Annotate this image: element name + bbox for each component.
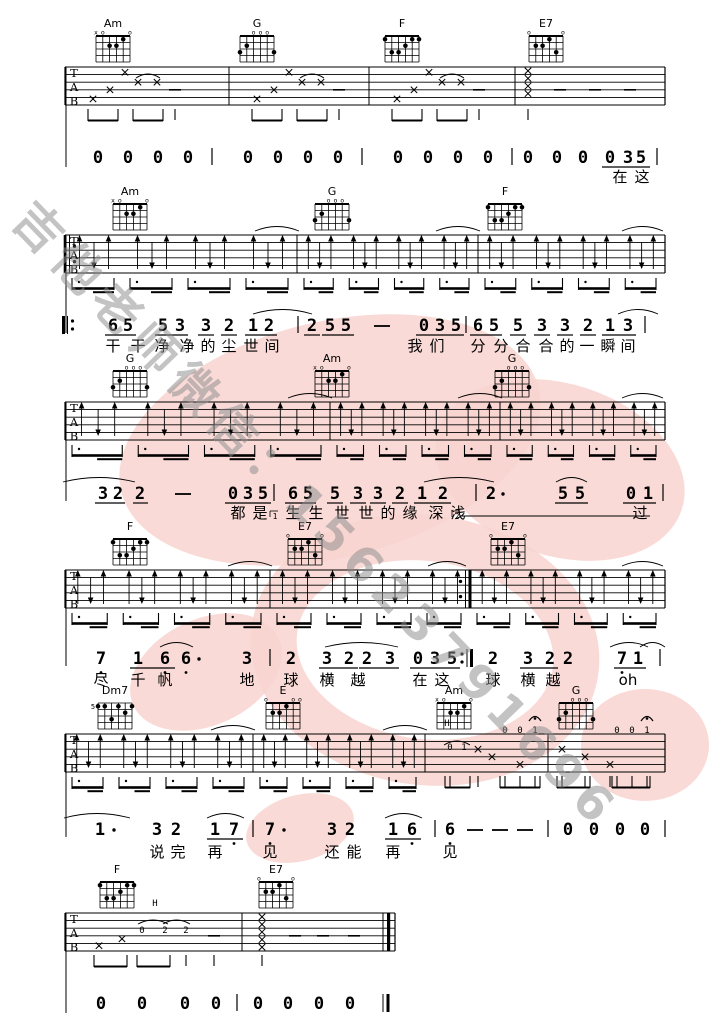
- chord-diagram-E7: E7oo: [489, 520, 527, 565]
- strum-up-arrowhead: [549, 402, 555, 409]
- jianpu-note: 3: [201, 316, 211, 336]
- lyric-syllable: 都: [230, 504, 245, 522]
- beam-rhythm-dot: [180, 616, 182, 618]
- chord-diagram-E7: E7oo: [286, 520, 324, 565]
- beam-rhythm-dot: [78, 281, 80, 283]
- jianpu-note: 2: [362, 649, 372, 669]
- chord-diagram-G: Gooo: [493, 352, 532, 397]
- strum-up-arrowhead: [380, 570, 386, 577]
- jianpu-note: 0: [93, 148, 103, 168]
- chord-finger-dot: [564, 710, 569, 715]
- jianpu-note: 0: [605, 148, 615, 168]
- jianpu-note: 6: [288, 484, 298, 504]
- jianpu-note: 6: [445, 820, 455, 840]
- chord-finger-dot: [527, 385, 532, 390]
- jianpu-note: 0: [578, 148, 588, 168]
- jianpu-low-octave-dot: [411, 842, 414, 845]
- chord-finger-dot: [111, 540, 116, 545]
- chord-finger-dot: [124, 211, 129, 216]
- chord-name-label: E: [280, 684, 287, 697]
- lyric-syllable: 净: [179, 337, 194, 355]
- beam-line-16th: [230, 458, 255, 460]
- chord-finger-dot: [271, 710, 276, 715]
- strum-up-arrowhead: [553, 570, 559, 577]
- beam-line-16th: [294, 626, 311, 628]
- beam-line: [213, 786, 244, 789]
- strum-up-arrowhead: [101, 570, 107, 577]
- chord-diagram-Am: Amxoo: [435, 684, 473, 729]
- lyric-syllable: 世: [334, 504, 349, 522]
- beam-rhythm-dot: [470, 448, 472, 450]
- jianpu-note: 2: [224, 316, 234, 336]
- jianpu-note: 7: [617, 649, 627, 669]
- chord-finger-dot: [306, 540, 311, 545]
- chord-finger-dot: [293, 546, 298, 551]
- jianpu-note: 0: [413, 649, 423, 669]
- chord-finger-dot: [502, 546, 507, 551]
- jianpu-slur-arc: [424, 478, 494, 483]
- beam-rhythm-dot: [78, 780, 80, 782]
- chord-finger-dot: [284, 704, 289, 709]
- jianpu-note: 2: [264, 316, 274, 336]
- beam-rhythm-dot: [428, 448, 430, 450]
- strum-up-arrowhead: [631, 402, 637, 409]
- chord-finger-dot: [493, 218, 498, 223]
- jianpu-augmentation-dot: [501, 492, 504, 495]
- strum-up-arrowhead: [178, 570, 184, 577]
- beam-rhythm-dot: [395, 780, 397, 782]
- lyric-syllable: 过: [632, 504, 647, 522]
- chord-finger-dot: [118, 553, 123, 558]
- chord-finger-dot: [396, 50, 401, 55]
- beam-rhythm-dot: [385, 448, 387, 450]
- chord-diagram-F: F: [486, 185, 525, 230]
- beam-line: [526, 622, 559, 625]
- chord-finger-dot: [313, 218, 318, 223]
- chord-finger-dot: [333, 378, 338, 383]
- jianpu-note: 3: [373, 484, 383, 504]
- chord-diagram-G: Gooo: [238, 17, 277, 62]
- pick-beam-line: [437, 120, 467, 122]
- chord-finger-dot: [284, 896, 289, 901]
- repeat-dot: [459, 595, 462, 598]
- jianpu-repeat-dot: [71, 319, 74, 322]
- pick-beam-line: [392, 120, 422, 122]
- jianpu-note: 6: [473, 316, 483, 336]
- pick-beam-line: [612, 787, 650, 789]
- jianpu-note: 1: [605, 316, 615, 336]
- beam-rhythm-dot: [584, 281, 586, 283]
- beam-rhythm-dot: [400, 281, 402, 283]
- lyric-syllable: 瞬: [600, 337, 615, 355]
- repeat-dot: [459, 580, 462, 583]
- beam-line-16th: [317, 790, 331, 792]
- strum-up-arrowhead: [405, 570, 411, 577]
- tab-letter: B: [70, 94, 78, 108]
- beam-line: [579, 287, 610, 290]
- jianpu-note: 6: [407, 820, 417, 840]
- beam-line-16th: [403, 790, 417, 792]
- chord-finger-dot: [124, 553, 129, 558]
- beam-rhythm-dot: [277, 448, 279, 450]
- jianpu-note: 2: [307, 316, 317, 336]
- strum-up-arrowhead: [652, 402, 658, 409]
- tab-fret-number: 1: [644, 726, 649, 736]
- chord-diagram-E7: E7oo: [527, 17, 565, 62]
- beam-rhythm-dot: [491, 281, 493, 283]
- jianpu-repeat-dot: [71, 327, 74, 330]
- lyric-syllable: 越: [545, 671, 560, 689]
- beam-line: [623, 622, 656, 625]
- strum-up-arrowhead: [441, 235, 447, 242]
- chord-diagram-F: F: [111, 520, 150, 565]
- beam-line: [427, 622, 461, 625]
- tab-letter: B: [70, 940, 78, 954]
- chord-finger-dot: [496, 546, 501, 551]
- jianpu-augmentation-dot: [197, 657, 200, 660]
- chord-finger-dot: [118, 378, 123, 383]
- jianpu-repeat-dot: [460, 660, 463, 663]
- jianpu-note: 3: [537, 316, 547, 336]
- chord-name-label: Am: [323, 352, 341, 365]
- tab-letter: A: [69, 747, 79, 761]
- chord-base-fret-label: 5: [91, 703, 95, 711]
- beam-line-16th: [640, 626, 656, 628]
- chord-diagram-G: Gooo: [111, 352, 150, 397]
- strum-up-arrowhead: [580, 235, 586, 242]
- tab-letter: B: [70, 597, 78, 611]
- beam-line: [123, 622, 158, 625]
- lyric-syllable: 帆: [157, 671, 172, 689]
- final-thick-barline: [387, 913, 390, 951]
- chord-finger-dot: [340, 372, 345, 377]
- staff-tie-arc: [383, 726, 427, 731]
- jianpu-note: 5: [258, 484, 268, 504]
- beam-rhythm-dot: [554, 448, 556, 450]
- beam-line: [477, 622, 510, 625]
- jianpu-note: 1: [388, 820, 398, 840]
- chord-finger-dot: [509, 540, 514, 545]
- strum-up-arrowhead: [373, 235, 379, 242]
- jianpu-note: 3: [560, 316, 570, 336]
- beam-line-16th: [602, 458, 615, 460]
- jianpu-note: 1: [210, 820, 220, 840]
- jianpu-slur-arc: [63, 478, 135, 483]
- beam-line-16th: [192, 626, 210, 628]
- chord-finger-dot: [500, 378, 505, 383]
- tab-letter: T: [70, 401, 78, 415]
- lyric-syllable: 球: [485, 671, 500, 689]
- staff-tie-arc: [622, 394, 663, 399]
- system-4: TABFE7ooE7oo7166323223035232271尽千帆地球横越在这…: [65, 520, 665, 689]
- chord-finger-dot: [520, 205, 525, 210]
- jianpu-note: 3: [322, 649, 332, 669]
- beam-line-16th: [500, 291, 515, 293]
- beam-line-16th: [643, 458, 656, 460]
- jianpu-note: 0: [123, 148, 133, 168]
- beam-line-16th: [350, 458, 363, 460]
- jianpu-low-octave-dot: [233, 842, 236, 845]
- strum-up-arrowhead: [487, 402, 493, 409]
- staff-tie-arc: [622, 562, 663, 567]
- beam-line: [72, 786, 103, 789]
- strum-up-arrowhead: [79, 402, 85, 409]
- strum-up-arrowhead: [528, 570, 534, 577]
- strum-up-arrowhead: [261, 734, 267, 741]
- chord-finger-dot: [486, 205, 491, 210]
- beam-rhythm-dot: [631, 281, 633, 283]
- jianpu-note: 0: [552, 148, 562, 168]
- jianpu-note: 6: [108, 316, 118, 336]
- chord-diagram-E7: E7oo: [257, 863, 295, 908]
- tab-fret-number: 1: [532, 726, 537, 736]
- jianpu-note: 0: [345, 994, 355, 1014]
- chord-finger-dot: [455, 710, 460, 715]
- jianpu-note: 0: [303, 148, 313, 168]
- lyric-syllable: 见: [262, 843, 277, 861]
- jianpu-note: 3: [98, 484, 108, 504]
- jianpu-note: 5: [558, 484, 568, 504]
- jianpu-note: 3: [243, 484, 253, 504]
- chord-finger-dot: [111, 896, 116, 901]
- staff-tie-arc: [428, 562, 466, 567]
- chord-diagram-F: F: [98, 863, 137, 908]
- chord-finger-dot: [98, 883, 103, 888]
- lyric-syllable: 我: [407, 337, 422, 355]
- chord-finger-dot: [145, 540, 150, 545]
- beam-rhythm-dot: [144, 448, 146, 450]
- lyric-syllable: 地: [239, 671, 254, 689]
- beam-rhythm-dot: [637, 448, 639, 450]
- strum-up-arrowhead: [419, 235, 425, 242]
- chord-name-label: Am: [121, 185, 139, 198]
- jianpu-note: 2: [563, 649, 573, 669]
- jianpu-note: 0: [453, 148, 463, 168]
- lyric-syllable: 千: [130, 671, 145, 689]
- pick-beam-line: [445, 787, 470, 789]
- beam-line: [548, 454, 573, 457]
- chord-finger-dot: [145, 385, 150, 390]
- jianpu-note: 7: [229, 820, 239, 840]
- chord-finger-dot: [320, 211, 325, 216]
- beam-rhythm-dot: [283, 616, 285, 618]
- beam-line: [590, 454, 615, 457]
- chord-finger-dot: [105, 896, 110, 901]
- jianpu-note: 0: [419, 316, 429, 336]
- hammer-on-label: H: [444, 719, 449, 729]
- chord-finger-dot: [107, 43, 112, 48]
- chord-finger-dot: [138, 205, 143, 210]
- lyric-syllable: 的: [380, 504, 395, 522]
- jianpu-slur-arc: [610, 643, 648, 648]
- jianpu-note: 1: [643, 484, 653, 504]
- strum-up-arrowhead: [611, 402, 617, 409]
- tab-fret-number: 2: [183, 926, 188, 936]
- system-5: TABDm75EoooAmxooGooo01001001H13217732166…: [64, 684, 665, 861]
- jianpu-note: 0: [314, 994, 324, 1014]
- lyric-syllable: 合: [515, 337, 530, 355]
- beam-line: [260, 786, 287, 789]
- chord-finger-dot: [347, 218, 352, 223]
- strum-up-arrowhead: [178, 402, 184, 409]
- lyric-syllable: 干: [105, 337, 120, 355]
- tab-fret-number: 0: [614, 726, 619, 736]
- strum-up-arrowhead: [601, 570, 607, 577]
- staff-tie-arc: [255, 227, 299, 232]
- tab-letter: A: [69, 583, 79, 597]
- beam-line-16th: [267, 291, 288, 293]
- strum-up-arrowhead: [193, 235, 199, 242]
- lyric-syllable: 在: [412, 671, 427, 689]
- beam-line-16th: [344, 626, 361, 628]
- lyric-syllable: 一: [579, 337, 594, 355]
- beam-line: [465, 454, 492, 457]
- jianpu-note: 5: [447, 649, 457, 669]
- jianpu-note: 6: [160, 649, 170, 669]
- beam-rhythm-dot: [194, 281, 196, 283]
- jianpu-note: 3: [353, 484, 363, 504]
- lyric-syllable: 合: [538, 337, 553, 355]
- tab-fret-number: 0: [517, 726, 522, 736]
- jianpu-note: 5: [451, 316, 461, 336]
- jianpu-note: 0: [137, 994, 147, 1014]
- jianpu-note: 2: [488, 649, 498, 669]
- beam-line: [395, 287, 424, 290]
- lyric-syllable: 在: [612, 168, 627, 186]
- jianpu-slur-arc: [325, 643, 398, 648]
- pick-beam-line: [252, 120, 282, 122]
- chord-finger-dot: [264, 889, 269, 894]
- chord-finger-dot: [410, 37, 415, 42]
- jianpu-note: 3: [430, 649, 440, 669]
- score-svg: TABAmxooGoooFE7oo000000000000000035在这TAB…: [0, 0, 724, 1024]
- beam-line: [389, 786, 416, 789]
- jianpu-note: 0: [253, 994, 263, 1014]
- fermata-dot: [646, 717, 649, 720]
- jianpu-note: 2: [171, 820, 181, 840]
- beam-line-16th: [478, 458, 491, 460]
- chord-name-label: F: [399, 17, 405, 30]
- chord-name-label: E7: [298, 520, 312, 533]
- chord-diagram-Am: Amxoo: [94, 17, 132, 62]
- chord-name-label: E7: [539, 17, 553, 30]
- jianpu-note: 7: [96, 649, 106, 669]
- lyric-syllable: 这: [634, 168, 649, 186]
- beam-line: [271, 454, 321, 457]
- beam-rhythm-dot: [309, 780, 311, 782]
- strum-up-arrowhead: [328, 235, 334, 242]
- chord-finger-dot: [299, 546, 304, 551]
- strum-up-arrowhead: [106, 235, 112, 242]
- staff-tie-arc: [622, 227, 663, 232]
- lyric-syllable: 完: [170, 843, 185, 861]
- jianpu-note: 3: [435, 316, 445, 336]
- jianpu-note: 0: [423, 148, 433, 168]
- chord-finger-dot: [557, 717, 562, 722]
- strum-up-arrowhead: [355, 570, 361, 577]
- strum-up-arrowhead: [121, 734, 127, 741]
- jianpu-note: 2: [344, 649, 354, 669]
- jianpu-note: 0: [589, 820, 599, 840]
- tab-fret-number: 2: [162, 926, 167, 936]
- chord-finger-dot: [123, 710, 128, 715]
- strum-up-arrowhead: [311, 402, 317, 409]
- beam-line-16th: [364, 291, 379, 293]
- strum-up-arrowhead: [254, 570, 260, 577]
- beam-line-16th: [274, 790, 288, 792]
- beam-rhythm-dot: [232, 616, 234, 618]
- strum-up-arrowhead: [423, 402, 429, 409]
- beam-rhythm-dot: [210, 448, 212, 450]
- beam-line-16th: [444, 626, 461, 628]
- strum-up-arrowhead: [411, 734, 417, 741]
- lyric-syllable: 横: [520, 671, 535, 689]
- beam-line: [380, 454, 407, 457]
- beam-line-16th: [394, 626, 411, 628]
- jianpu-slur-arc: [207, 814, 244, 819]
- chord-name-label: F: [127, 520, 133, 533]
- lyric-syllable: 再: [207, 843, 222, 861]
- strum-up-arrowhead: [380, 402, 386, 409]
- staff-tie-arc: [228, 562, 272, 567]
- lyric-syllable: 们: [429, 337, 444, 355]
- chord-finger-dot: [277, 883, 282, 888]
- chord-finger-dot: [121, 37, 126, 42]
- jianpu-note: 5: [341, 316, 351, 336]
- beam-line: [377, 622, 411, 625]
- tab-fret-number: 0: [629, 726, 634, 736]
- chord-finger-dot: [493, 385, 498, 390]
- jianpu-note: 1: [133, 649, 143, 669]
- strum-up-arrowhead: [126, 570, 132, 577]
- strum-up-arrowhead: [430, 570, 436, 577]
- tab-letter: B: [70, 429, 78, 443]
- chord-finger-dot: [540, 43, 545, 48]
- jianpu-repeat-dot: [460, 652, 463, 655]
- pick-beam-line: [137, 966, 170, 968]
- jianpu-note: 0: [626, 484, 636, 504]
- lyric-syllable: 越: [350, 671, 365, 689]
- strum-up-arrowhead: [135, 235, 141, 242]
- strum-up-arrowhead: [359, 402, 365, 409]
- strum-up-arrowhead: [278, 402, 284, 409]
- jianpu-note: 2: [345, 820, 355, 840]
- system-1: TABAmxooGoooFE7oo000000000000000035在这: [65, 17, 665, 186]
- jianpu-repeat-thick: [470, 649, 473, 667]
- chord-finger-dot: [326, 378, 331, 383]
- lyric-syllable: 的: [200, 337, 215, 355]
- jianpu-note: 2: [395, 484, 405, 504]
- lyric-syllable: 世: [358, 504, 373, 522]
- chord-diagram-F: F: [383, 17, 422, 62]
- jianpu-note: 0: [283, 994, 293, 1014]
- beam-line-16th: [454, 291, 469, 293]
- chord-finger-dot: [245, 43, 250, 48]
- jianpu-final-thick: [387, 994, 390, 1012]
- chord-name-label: F: [502, 185, 508, 198]
- jianpu-note: 5: [575, 484, 585, 504]
- beam-rhythm-dot: [538, 281, 540, 283]
- chord-finger-dot: [138, 540, 143, 545]
- chord-finger-dot: [270, 889, 275, 894]
- strum-up-arrowhead: [238, 734, 244, 741]
- beam-line-16th: [141, 626, 159, 628]
- strum-up-arrowhead: [251, 235, 257, 242]
- beam-line: [226, 622, 261, 625]
- strum-up-arrowhead: [244, 402, 250, 409]
- pick-beam-line: [88, 120, 118, 122]
- strum-up-arrowhead: [487, 235, 493, 242]
